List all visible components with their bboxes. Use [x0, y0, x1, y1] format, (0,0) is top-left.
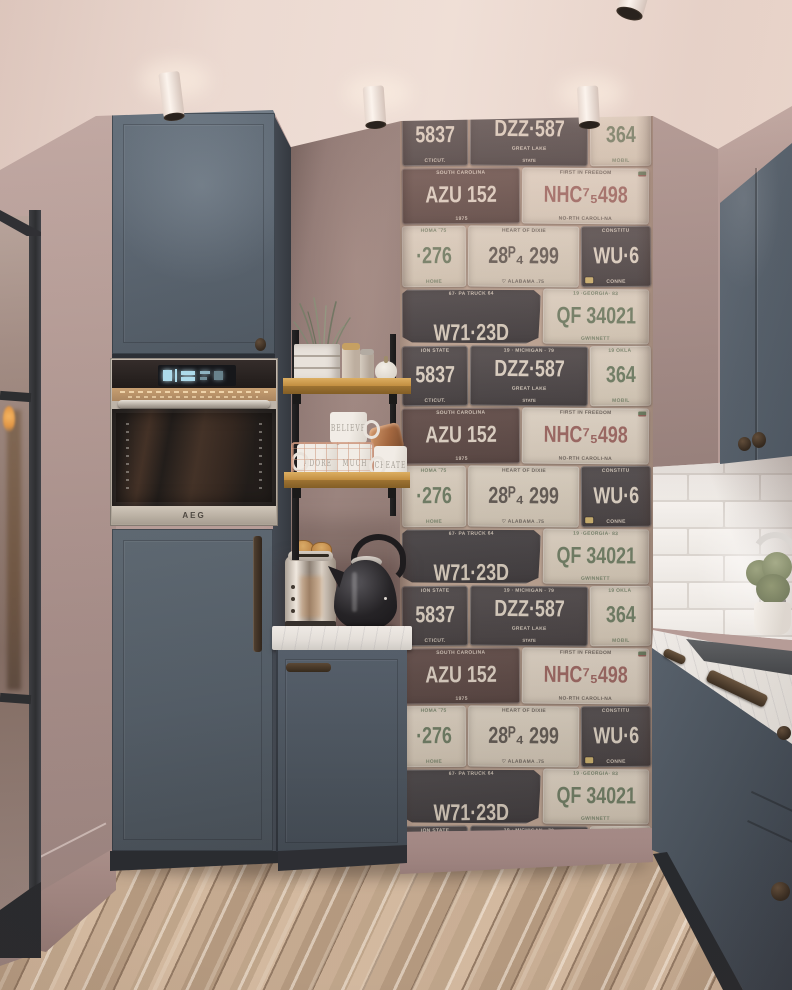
plate-header: SOUTH CAROLINA	[436, 410, 485, 415]
jar-lid	[360, 349, 374, 355]
plate-footer: NO-RTH CAROLI-NA	[559, 456, 612, 461]
counter-marble-top	[272, 626, 412, 650]
plate-footer: ♡ ALABAMA .75	[502, 279, 545, 284]
oven-brand-logo: AEG	[182, 511, 205, 520]
flag-icon	[638, 411, 646, 416]
plate-pennsylvania-w7123d: 67· PA TRUCK 64W71·23D	[402, 528, 541, 584]
wood-shelf	[284, 472, 410, 480]
plate-header: 67· PA TRUCK 64	[449, 291, 494, 296]
oven-display-time	[181, 377, 195, 381]
wallpaper-row-a: ION STATE5837CTICUT.19 · MICHIGAN · 79DZ…	[400, 585, 653, 647]
plate-footer: HOME	[426, 759, 442, 764]
plate-footer2: STATE	[522, 160, 536, 164]
door-inset-panel	[123, 540, 262, 840]
plate-connecticut-wu6: CONSTITUWU·6CONNE	[581, 226, 652, 288]
subway-tile	[725, 502, 792, 527]
plate-header: SOUTH CAROLINA	[436, 170, 485, 175]
plate-header: CONSTITU	[602, 468, 630, 473]
plate-michigan-dzz587: 19 · MICHIGAN · 79DZZ·587GREAT LAKESTATE	[470, 345, 589, 406]
plate-header: 19 OKLA	[609, 588, 632, 593]
plate-alabama-299: HEART OF DIXIE28ᴾ₄ 299♡ ALABAMA .75	[468, 466, 580, 528]
plate-number: 364	[605, 125, 635, 147]
plate-footer: ♡ ALABAMA .75	[502, 519, 545, 524]
plate-footer2: STATE	[522, 400, 536, 404]
crate-slat-gap	[294, 355, 340, 357]
plate-south-carolina-azu152: SOUTH CAROLINAAZU 1521975	[402, 647, 520, 704]
registration-sticker	[585, 277, 593, 283]
plate-header: FIRST IN FREEDOM	[560, 650, 612, 655]
oven-display-time	[181, 371, 195, 375]
plate-number: 28ᴾ₄ 299	[488, 246, 559, 268]
plate-number: QF 34021	[556, 545, 636, 567]
plate-number: 5837	[415, 125, 455, 147]
plate-header: SOUTH CAROLINA	[436, 650, 485, 655]
wallpaper-row-b: SOUTH CAROLINAAZU 1521975FIRST IN FREEDO…	[400, 647, 653, 705]
plate-header: 19 ·GEORGIA· 83	[574, 531, 619, 536]
wallpaper-row-c: HOMA ˜75·276HOMEHEART OF DIXIE28ᴾ₄ 299♡ …	[400, 225, 653, 288]
glass-jar	[360, 352, 374, 381]
plate-header: 19 ·GEORGIA· 83	[574, 771, 619, 776]
oven-rack-marks	[259, 423, 262, 489]
crate-slat-gap	[294, 367, 340, 369]
plate-pennsylvania-w7123d: 67· PA TRUCK 64W71·23D	[402, 768, 541, 824]
plate-header: HEART OF DIXIE	[502, 708, 546, 713]
plate-number: NHC⁷₅498	[543, 425, 627, 447]
plate-header: 67· PA TRUCK 64	[449, 771, 494, 776]
plate-number: W71·23D	[434, 322, 510, 344]
plate-footer: GWINNETT	[581, 336, 610, 341]
plate-footer: NO-RTH CAROLI-NA	[559, 216, 612, 221]
plate-oklahoma-364: 19 OKLA364MOBIL	[590, 346, 652, 407]
wallpaper-row-b: SOUTH CAROLINAAZU 1521975FIRST IN FREEDO…	[400, 407, 653, 465]
mug: BELIEVE	[330, 412, 367, 444]
wallpaper-row-b: SOUTH CAROLINAAZU 1521975FIRST IN FREEDO…	[400, 167, 653, 225]
plate-number: QF 34021	[556, 785, 636, 807]
plate-footer: CTICUT.	[425, 398, 446, 403]
plate-footer: HOME	[426, 279, 442, 284]
shelf-bracket	[293, 394, 301, 404]
plate-header: CONSTITU	[602, 708, 630, 713]
plate-number: 28ᴾ₄ 299	[488, 486, 559, 508]
mug-handle	[363, 420, 380, 439]
plate-footer: GWINNETT	[581, 576, 610, 581]
plate-number: 5837	[415, 365, 455, 387]
plate-footer: CTICUT.	[425, 638, 446, 643]
plate-connecticut-5837: ION STATE5837CTICUT.	[402, 826, 469, 832]
oven-rack-marks	[126, 423, 129, 489]
plate-header: HOMA ˜75	[421, 468, 447, 473]
counter-cabinet-door	[276, 650, 407, 852]
door-inset-panel	[123, 124, 264, 343]
wallpaper-row-c: HOMA ˜75·276HOMEHEART OF DIXIE28ᴾ₄ 299♡ …	[400, 705, 653, 768]
wood-shelf	[283, 378, 411, 386]
plate-footer: 1975	[455, 216, 467, 221]
oven-display-segment	[175, 369, 177, 382]
plate-number: NHC⁷₅498	[543, 665, 627, 687]
plate-alabama-299: HEART OF DIXIE28ᴾ₄ 299♡ ALABAMA .75	[468, 706, 580, 768]
oven-display	[158, 365, 236, 386]
plate-header: ION STATE	[421, 588, 450, 593]
plate-number: AZU 152	[425, 185, 497, 207]
wood-shelf-edge	[283, 386, 411, 394]
tile-row	[653, 475, 792, 500]
subway-tile	[689, 529, 759, 554]
plate-footer2: STATE	[522, 640, 536, 644]
plate-number: 5837	[415, 605, 455, 627]
license-plate-wallpaper: ION STATE5837CTICUT.19 · MICHIGAN · 79DZ…	[400, 105, 653, 832]
plate-footer: CONNE	[606, 279, 625, 284]
plate-oklahoma-276: HOMA ˜75·276HOME	[402, 466, 467, 528]
tall-cabinet-handle	[253, 536, 262, 652]
plate-number: W71·23D	[434, 562, 510, 584]
plate-number: DZZ·587	[494, 119, 565, 141]
plate-header: 67· PA TRUCK 64	[449, 531, 494, 536]
plate-number: WU·6	[593, 726, 639, 748]
plate-number: 364	[605, 605, 635, 627]
plate-north-carolina-nhc498: FIRST IN FREEDOMNHC⁷₅498NO-RTH CAROLI-NA	[522, 647, 649, 704]
cabinet-knob	[738, 437, 751, 451]
kitchen-scene: ION STATE5837CTICUT.19 · MICHIGAN · 79DZ…	[0, 0, 792, 990]
subway-tile	[653, 556, 723, 581]
door-frame-stile	[29, 210, 41, 958]
oven-display-segment	[200, 377, 207, 380]
oven-handle	[118, 400, 270, 408]
subway-tile	[653, 502, 723, 527]
oven-display-icon	[214, 371, 223, 380]
glass-door	[0, 210, 44, 958]
plate-number: QF 34021	[556, 305, 636, 327]
shelf-bracket	[388, 488, 396, 498]
potted-plant-foliage	[756, 574, 790, 604]
right-facing-wall	[653, 114, 718, 470]
plate-header: HEART OF DIXIE	[502, 468, 546, 473]
plate-number: WU·6	[593, 246, 639, 268]
cabinet-knob	[752, 432, 766, 448]
plate-number: ·276	[416, 246, 452, 268]
plate-south-carolina-azu152: SOUTH CAROLINAAZU 1521975	[402, 407, 520, 464]
plate-oklahoma-276: HOMA ˜75·276HOME	[402, 226, 467, 288]
kettle-logo	[384, 597, 387, 600]
plate-connecticut-wu6: CONSTITUWU·6CONNE	[581, 706, 652, 768]
plate-north-carolina-nhc498: FIRST IN FREEDOMNHC⁷₅498NO-RTH CAROLI-NA	[522, 407, 649, 464]
plate-header: 19 · MICHIGAN · 79	[504, 348, 555, 353]
wallpaper-row-d: 67· PA TRUCK 64W71·23D19 ·GEORGIA· 83QF …	[400, 528, 653, 585]
flag-icon	[638, 651, 646, 656]
counter-cabinet-handle	[286, 663, 331, 672]
plate-footer: GREAT LAKE	[511, 146, 546, 151]
plate-footer: MOBIL	[612, 158, 630, 163]
plate-north-carolina-nhc498: FIRST IN FREEDOMNHC⁷₅498NO-RTH CAROLI-NA	[522, 167, 649, 224]
built-in-oven: AEG	[110, 358, 278, 526]
registration-sticker	[585, 757, 593, 763]
oven-brand-band: AEG	[112, 506, 276, 524]
plate-pennsylvania-w7123d: 67· PA TRUCK 64W71·23D	[402, 288, 541, 344]
plate-number: AZU 152	[425, 665, 497, 687]
plate-header: HEART OF DIXIE	[502, 228, 546, 233]
plate-footer: 1975	[455, 456, 467, 461]
cabinet-knob	[771, 882, 790, 901]
cabinet-door-seam-highlight	[757, 168, 758, 460]
plate-number: ·276	[416, 726, 452, 748]
shelf-bracket	[293, 488, 301, 498]
plate-header: FIRST IN FREEDOM	[560, 170, 612, 175]
plate-footer: 1975	[455, 696, 467, 701]
kettle-highlight	[352, 572, 357, 612]
plate-header: HOMA ˜75	[421, 228, 447, 233]
plate-header: HOMA ˜75	[421, 708, 447, 713]
wallpaper-row-a: ION STATE5837CTICUT.19 · MICHIGAN · 79DZ…	[400, 345, 653, 407]
tall-cabinet-upper-door	[112, 113, 275, 354]
plate-number: DZZ·587	[494, 359, 565, 381]
subway-tile	[653, 610, 723, 635]
plate-georgia-qf34021: 19 ·GEORGIA· 83QF 34021GWINNETT	[543, 769, 649, 825]
plate-footer: ♡ ALABAMA .75	[502, 759, 545, 764]
subway-tile	[653, 529, 687, 554]
tall-cabinet-lower-door	[112, 529, 273, 851]
plate-footer: CONNE	[606, 759, 625, 764]
ceiling-spotlight	[363, 85, 387, 126]
wallpaper-row-d: 67· PA TRUCK 64W71·23D19 ·GEORGIA· 83QF …	[400, 768, 653, 825]
wallpaper-row-c: HOMA ˜75·276HOMEHEART OF DIXIE28ᴾ₄ 299♡ …	[400, 465, 653, 528]
wallpaper-row-d: 67· PA TRUCK 64W71·23D19 ·GEORGIA· 83QF …	[400, 288, 653, 345]
plate-header: 19 · MICHIGAN · 79	[504, 588, 555, 593]
registration-sticker	[585, 517, 593, 523]
plate-oklahoma-364: 19 OKLA364MOBIL	[590, 586, 652, 647]
plate-michigan-dzz587: 19 · MICHIGAN · 79DZZ·587GREAT LAKESTATE	[470, 585, 589, 646]
toaster-knob	[291, 597, 295, 601]
plate-connecticut-wu6: CONSTITUWU·6CONNE	[581, 466, 652, 528]
subway-tile	[653, 583, 687, 608]
plate-footer: MOBIL	[612, 398, 630, 403]
wood-shelf-edge	[284, 480, 410, 488]
plate-number: NHC⁷₅498	[543, 185, 627, 207]
plate-header: FIRST IN FREEDOM	[560, 410, 612, 415]
toaster-lever	[291, 609, 295, 613]
subway-tile	[761, 475, 792, 500]
plate-footer: CTICUT.	[425, 158, 446, 163]
plate-footer: HOME	[426, 519, 442, 524]
plate-footer: CONNE	[606, 519, 625, 524]
subway-tile	[653, 475, 687, 500]
plate-header: ION STATE	[421, 348, 450, 353]
mug-word: BELIEVE	[331, 423, 366, 434]
oven-door-glass	[112, 409, 276, 506]
oven-display-segment	[200, 371, 210, 374]
plate-number: W71·23D	[434, 802, 510, 824]
toaster-knob	[291, 585, 295, 589]
cabinet-knob	[255, 338, 266, 351]
plate-footer: MOBIL	[612, 638, 630, 643]
oven-display-icon	[163, 370, 172, 381]
oven-control-band	[112, 360, 276, 388]
plate-footer: GREAT LAKE	[511, 626, 546, 631]
plate-number: AZU 152	[425, 425, 497, 447]
plate-footer: NO-RTH CAROLI-NA	[559, 696, 612, 701]
plate-header: 19 ·GEORGIA· 83	[574, 291, 619, 296]
shelf-bracket	[389, 394, 397, 404]
subway-tile	[689, 475, 759, 500]
plate-oklahoma-276: HOMA ˜75·276HOME	[402, 706, 467, 768]
plate-header: CONSTITU	[602, 228, 630, 233]
door-inset-panel	[285, 659, 398, 843]
plate-connecticut-5837: ION STATE5837CTICUT.	[402, 346, 469, 407]
plate-header: 19 OKLA	[609, 348, 632, 353]
door-reflection	[7, 410, 21, 690]
ceiling-spotlight	[577, 85, 600, 126]
tile-row	[653, 502, 792, 527]
flag-icon	[638, 171, 646, 176]
plate-alabama-299: HEART OF DIXIE28ᴾ₄ 299♡ ALABAMA .75	[468, 226, 580, 288]
plate-footer: GREAT LAKE	[511, 386, 546, 391]
white-crate	[294, 344, 340, 382]
cabinet-knob	[777, 726, 791, 740]
plate-number: 364	[605, 365, 635, 387]
plant-pot	[754, 602, 791, 635]
glass-jar	[342, 346, 360, 381]
plate-number: WU·6	[593, 486, 639, 508]
plate-number: 28ᴾ₄ 299	[488, 726, 559, 748]
plate-georgia-qf34021: 19 ·GEORGIA· 83QF 34021GWINNETT	[543, 289, 649, 345]
subway-tile	[689, 583, 759, 608]
plate-south-carolina-azu152: SOUTH CAROLINAAZU 1521975	[402, 167, 520, 224]
reflected-lamp-glow	[3, 406, 15, 432]
toaster-reflection	[300, 576, 322, 618]
plate-footer: GWINNETT	[581, 816, 610, 821]
plate-georgia-qf34021: 19 ·GEORGIA· 83QF 34021GWINNETT	[543, 529, 649, 585]
plate-number: DZZ·587	[494, 599, 565, 621]
plate-number: ·276	[416, 486, 452, 508]
jar-lid	[342, 343, 360, 350]
